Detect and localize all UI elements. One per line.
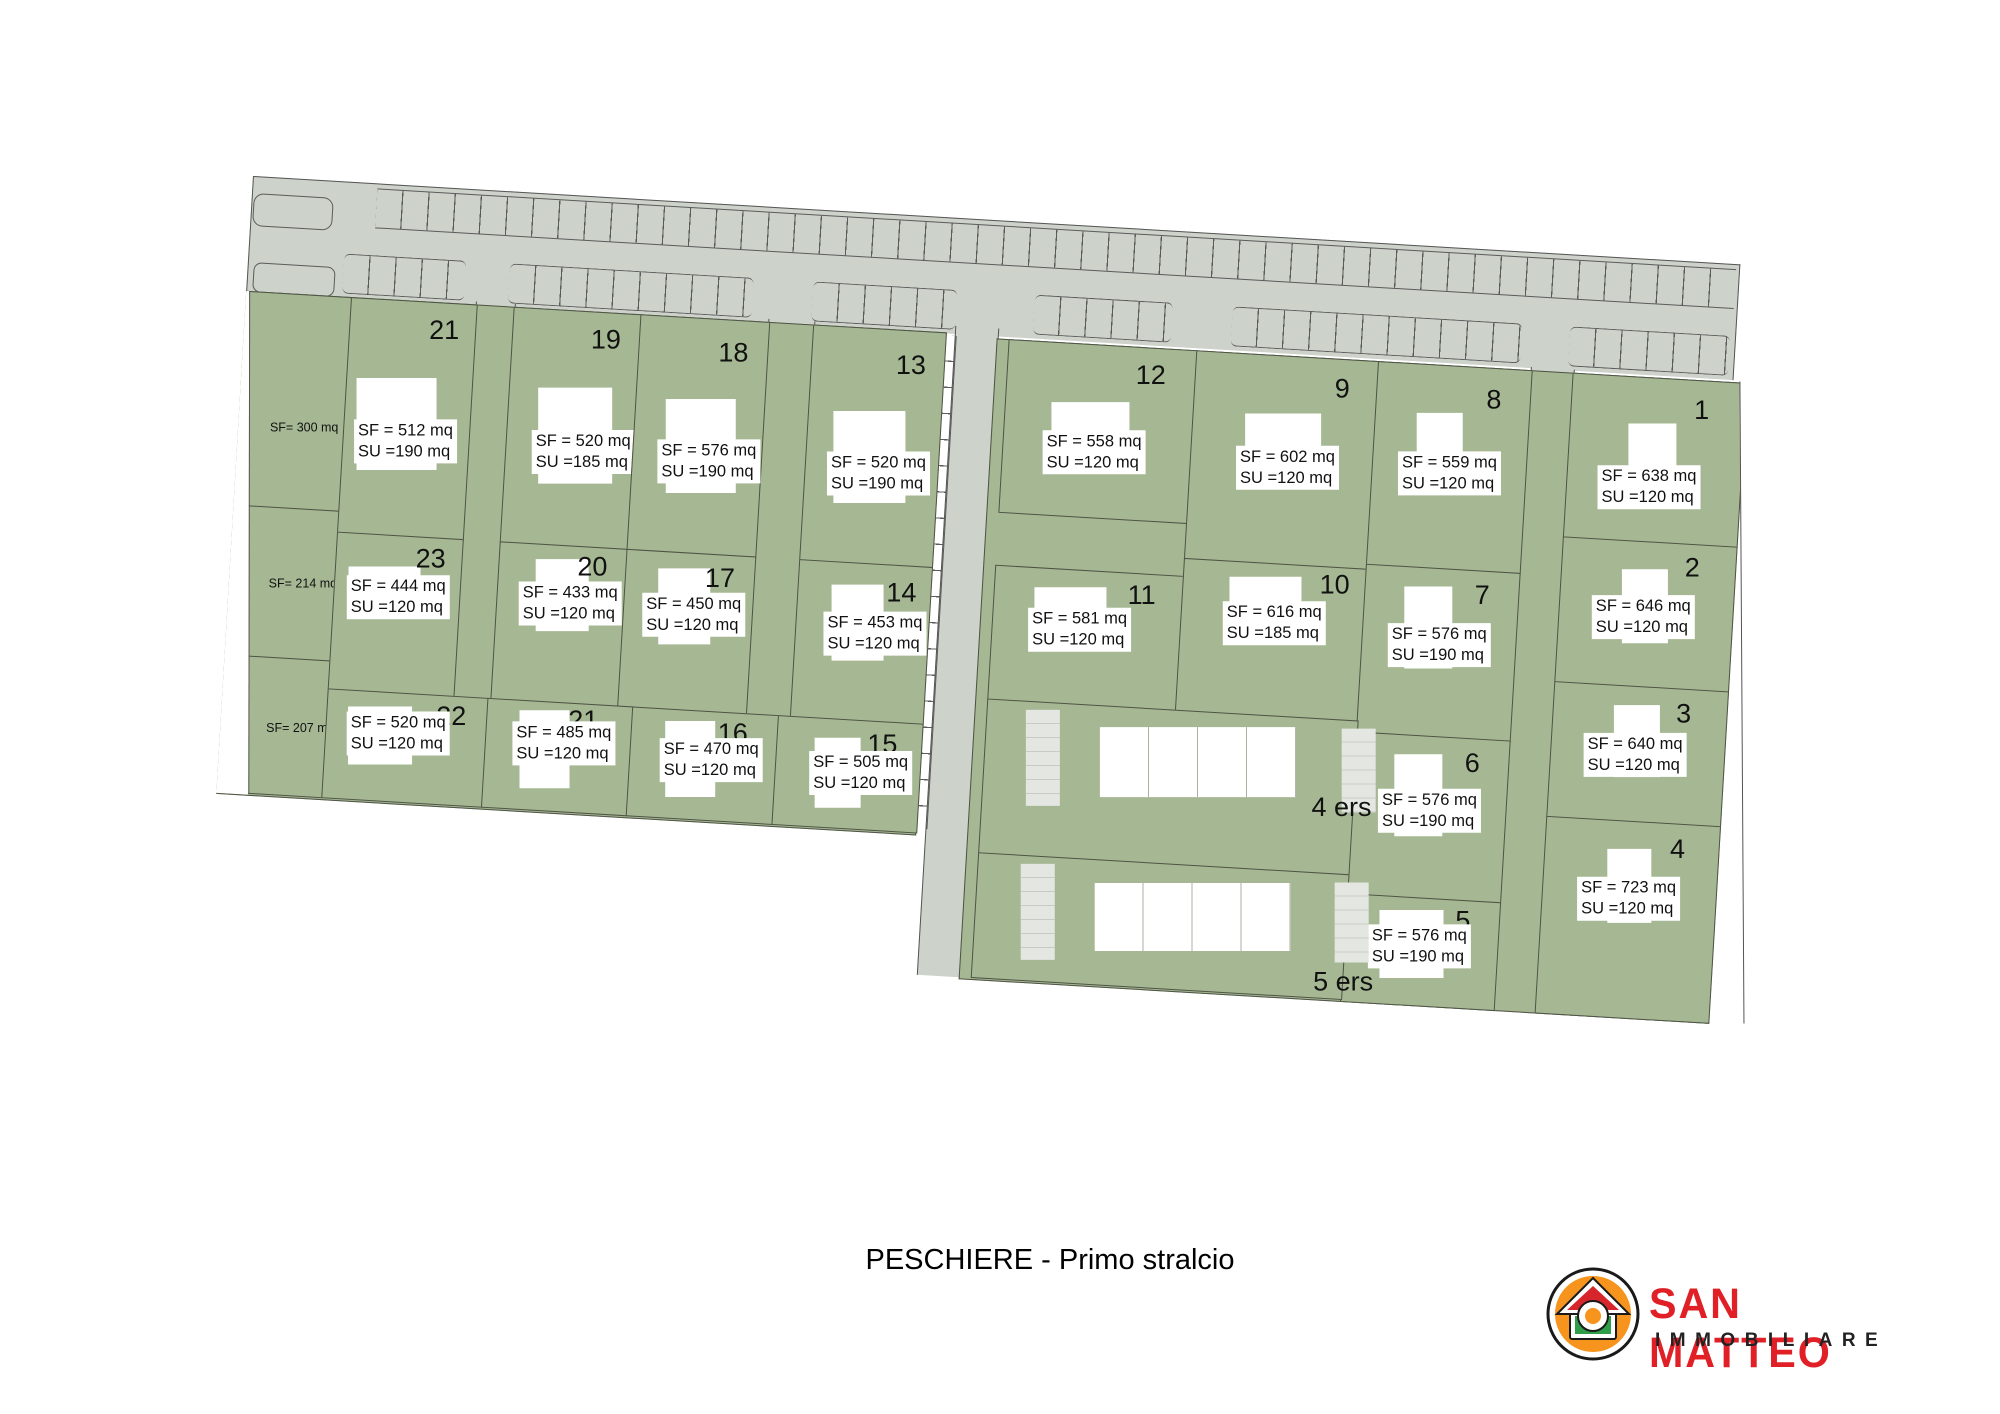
plan-title: PESCHIERE - Primo stralcio bbox=[660, 1244, 1440, 1277]
lot-number: 19 bbox=[591, 325, 621, 356]
side-plot-s300 bbox=[235, 291, 353, 513]
lot-number: 13 bbox=[896, 350, 926, 381]
lot-area-label: SF = 558 mq SU =120 mq bbox=[1043, 430, 1146, 474]
lot-number: 3 bbox=[1676, 698, 1691, 729]
parking-stalls-bottom bbox=[342, 254, 466, 301]
lot-area-label: SF = 559 mq SU =120 mq bbox=[1398, 451, 1501, 495]
ers-parking-strip bbox=[1026, 710, 1060, 806]
lot-number: 10 bbox=[1320, 569, 1350, 600]
lot-area-label: SF = 433 mq SU =120 mq bbox=[519, 581, 622, 625]
side-plot-label: SF= 300 mq bbox=[270, 420, 338, 434]
lot-area-label: SF = 512 mq SU =190 mq bbox=[354, 419, 457, 463]
lot-area-label: SF = 576 mq SU =190 mq bbox=[1388, 623, 1491, 667]
ers-label: 4 ers bbox=[1311, 792, 1371, 823]
site-plan-page: SF= 300 mqSF= 214 mqSF= 207 mq21SF = 512… bbox=[0, 0, 2000, 1414]
lot-number: 20 bbox=[577, 551, 607, 582]
company-logo: SAN MATTEO IMMOBILIARE bbox=[1545, 1266, 1935, 1386]
lot-area-label: SF = 602 mq SU =120 mq bbox=[1236, 446, 1339, 490]
lot-number: 2 bbox=[1685, 553, 1700, 584]
ers-row-building bbox=[1095, 883, 1291, 951]
subdivision-plan: SF= 300 mqSF= 214 mqSF= 207 mq21SF = 512… bbox=[199, 176, 1750, 1173]
lot-number: 18 bbox=[718, 337, 748, 368]
lot-area-label: SF = 576 mq SU =190 mq bbox=[1378, 789, 1481, 833]
lot-area-label: SF = 505 mq SU =120 mq bbox=[809, 751, 912, 795]
lot-number: 4 bbox=[1670, 834, 1685, 865]
lot-number: 21 bbox=[429, 315, 459, 346]
lot-number: 7 bbox=[1475, 580, 1490, 611]
lot-number: 8 bbox=[1486, 384, 1501, 415]
logo-house-icon bbox=[1545, 1266, 1641, 1362]
ers-parking-strip bbox=[1335, 882, 1369, 962]
ers-label: 5 ers bbox=[1313, 967, 1373, 998]
logo-subtitle: IMMOBILIARE bbox=[1655, 1330, 1887, 1352]
lot-number: 14 bbox=[886, 578, 916, 609]
lot-number: 23 bbox=[416, 544, 446, 575]
lot-area-label: SF = 450 mq SU =120 mq bbox=[642, 593, 745, 637]
parking-stalls-bottom bbox=[1033, 295, 1173, 343]
lot-area-label: SF = 581 mq SU =120 mq bbox=[1028, 608, 1131, 652]
lot-area-label: SF = 638 mq SU =120 mq bbox=[1598, 465, 1701, 509]
ers-parking-strip bbox=[1021, 864, 1055, 960]
lot-area-label: SF = 723 mq SU =120 mq bbox=[1577, 877, 1680, 921]
side-plot-label: SF= 214 mq bbox=[269, 577, 337, 591]
ers-row-building bbox=[1100, 727, 1296, 797]
lot-area-label: SF = 640 mq SU =120 mq bbox=[1584, 733, 1687, 777]
parking-stalls-bottom bbox=[811, 281, 957, 329]
lot-number: 17 bbox=[705, 563, 735, 594]
lot-area-label: SF = 444 mq SU =120 mq bbox=[347, 575, 450, 619]
lot-area-label: SF = 646 mq SU =120 mq bbox=[1592, 595, 1695, 639]
logo-name: SAN MATTEO bbox=[1649, 1280, 1924, 1378]
lot-area-label: SF = 485 mq SU =120 mq bbox=[512, 721, 615, 765]
lot-area-label: SF = 520 mq SU =185 mq bbox=[532, 430, 635, 474]
lot-area-label: SF = 576 mq SU =190 mq bbox=[1368, 924, 1471, 968]
lot-number: 6 bbox=[1465, 748, 1480, 779]
lot-number: 12 bbox=[1136, 360, 1166, 391]
lot-number: 9 bbox=[1335, 373, 1350, 404]
lot-area-label: SF = 520 mq SU =120 mq bbox=[347, 711, 450, 755]
lot-area-label: SF = 616 mq SU =185 mq bbox=[1223, 601, 1326, 645]
lot-area-label: SF = 470 mq SU =120 mq bbox=[660, 738, 763, 782]
lot-area-label: SF = 520 mq SU =190 mq bbox=[827, 452, 930, 496]
lot-area-label: SF = 576 mq SU =190 mq bbox=[657, 439, 760, 483]
lot-area-label: SF = 453 mq SU =120 mq bbox=[823, 612, 926, 656]
lot-number: 11 bbox=[1128, 580, 1156, 611]
parking-bay bbox=[252, 193, 334, 231]
lot-number: 1 bbox=[1694, 395, 1709, 426]
